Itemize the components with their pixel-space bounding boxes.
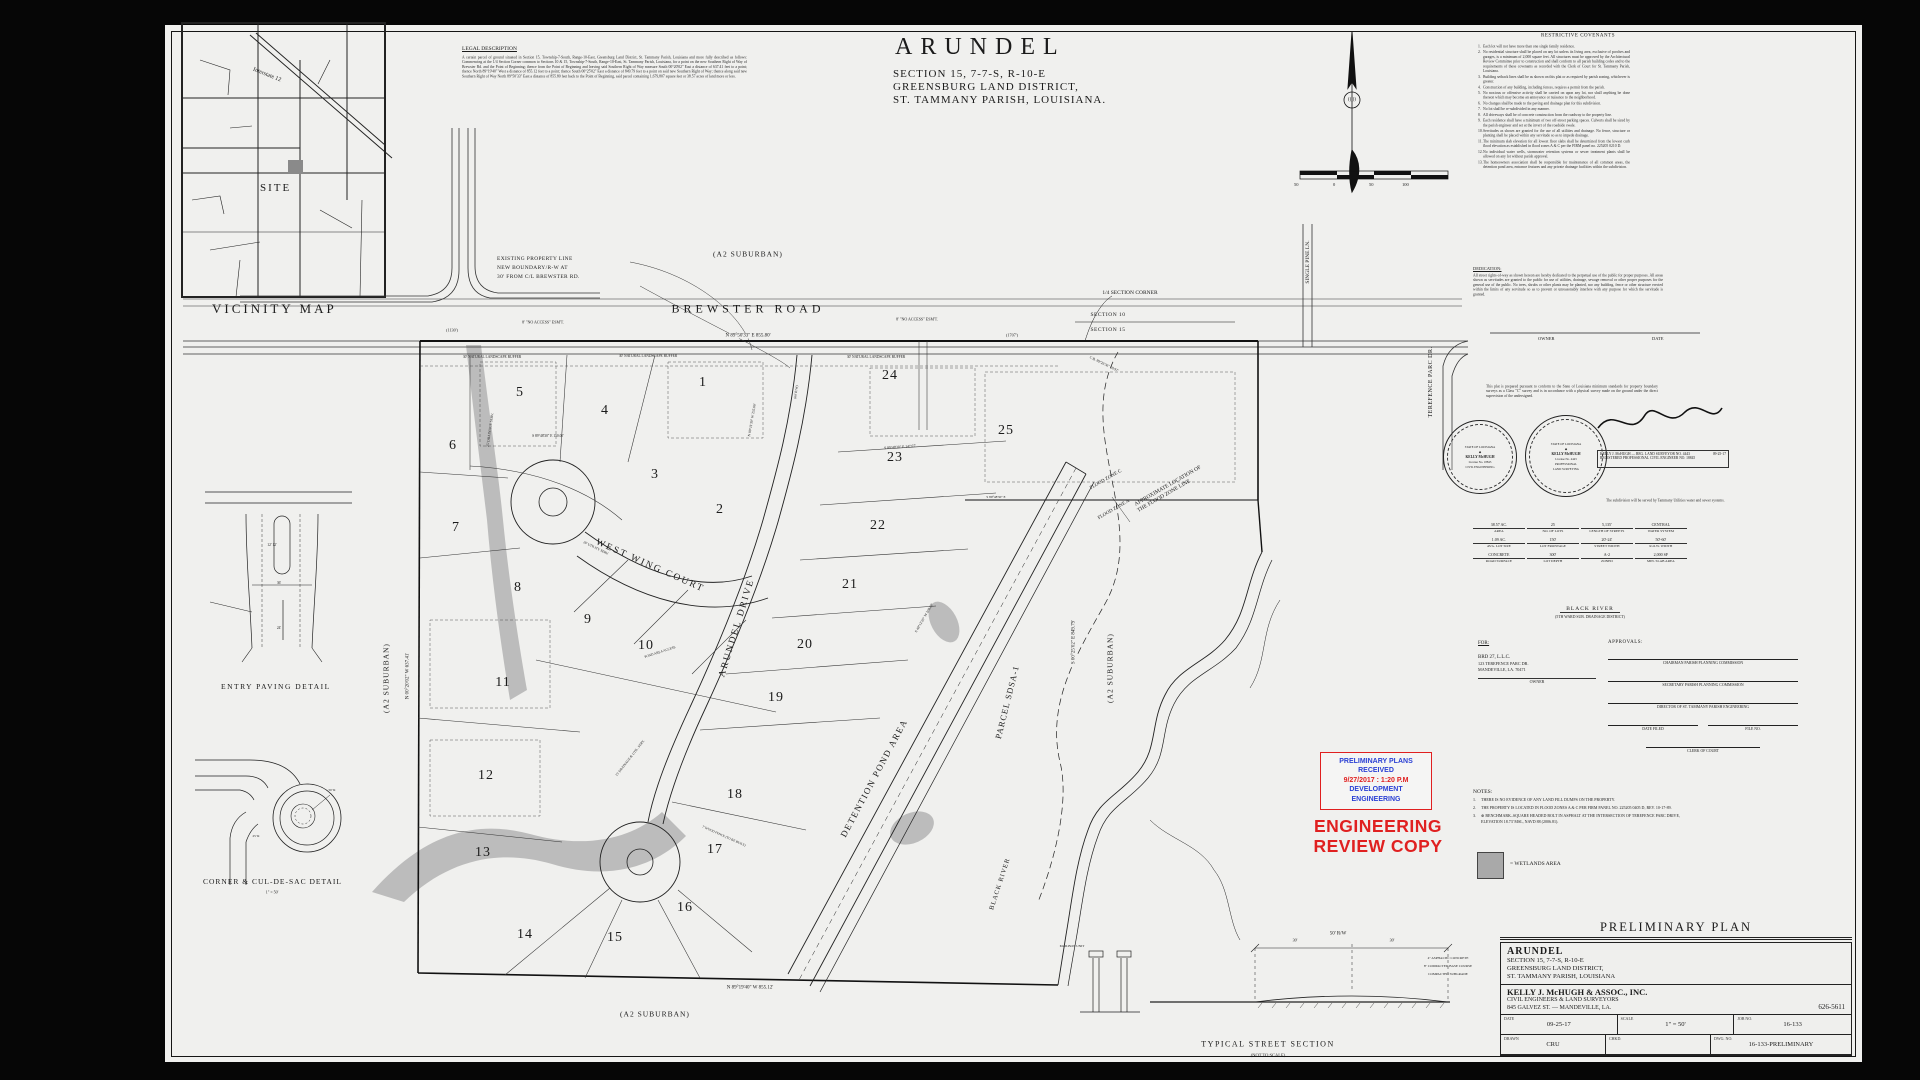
micro-annotation: S 89°48'30" E 150.00' <box>532 434 564 438</box>
signature-box: KELLY J. McHUGH — REG. LAND SURVEYOR NO.… <box>1597 450 1729 468</box>
section10-label: SECTION 10 <box>1090 312 1125 318</box>
setback-lines <box>420 362 1235 816</box>
statistic-cell: A-2ZONED <box>1581 552 1633 563</box>
culdesac-caption: CORNER & CUL-DE-SAC DETAIL <box>203 877 342 886</box>
legal-heading: LEGAL DESCRIPTION <box>462 46 517 52</box>
note-item: 2.THE PROPERTY IS LOCATED IN FLOOD ZONES… <box>1473 805 1683 810</box>
lot-number: 1 <box>699 375 707 391</box>
titleblock-field-job-no-: JOB NO.16-133 <box>1734 1015 1851 1035</box>
boundary-lines <box>418 296 1262 985</box>
titleblock-field-date: DATE09-25-17 <box>1501 1015 1618 1035</box>
utility-service-note: The subdivision will be served by Tamman… <box>1606 498 1726 518</box>
statistic-cell: 25NO. OF LOTS <box>1527 522 1579 533</box>
site-label: SITE <box>260 182 291 194</box>
for-block: FOR: BRD 27, L.L.C. 123 TEREFENCE PARC D… <box>1478 640 1596 685</box>
arundel-drive-lines <box>600 355 812 902</box>
approval-signature-line: SECRETARY PARISH PLANNING COMMISSION <box>1608 671 1798 687</box>
covenant-item: 1.Each lot will not have more than one s… <box>1478 44 1630 49</box>
titleblock-field-dwg-no-: DWG. NO.16-133-PRELIMINARY <box>1711 1035 1851 1055</box>
lot-number: 20 <box>797 637 813 653</box>
micro-annotation: 8' "NO ACCESS" ESM'T. <box>522 320 564 325</box>
plat-sheet-page: ARUNDEL SECTION 15, 7-7-S, R-10-E GREENS… <box>0 0 1920 1080</box>
section15-label: SECTION 15 <box>1090 327 1125 333</box>
road-lines <box>183 128 1468 470</box>
wetlands-areas <box>372 345 966 902</box>
statistic-cell: 2,000 SFMIN. SLAB AREA <box>1635 552 1687 563</box>
statistic-cell: CONCRETEROAD SURFACE <box>1473 552 1525 563</box>
micro-annotation: (1707') <box>1006 333 1018 338</box>
wetlands-legend-swatch <box>1477 852 1504 879</box>
covenants-body: 1.Each lot will not have more than one s… <box>1478 44 1630 262</box>
bearing-right: S 00°25'02" E 849.79' <box>1072 620 1077 664</box>
covenant-item: 3.Building setback lines shall be as sho… <box>1478 74 1630 83</box>
micro-annotation: 36' <box>277 581 281 585</box>
scale-tick: 50 <box>1369 182 1374 187</box>
lot-number: 17 <box>707 842 723 858</box>
lot-number: 23 <box>887 450 903 466</box>
statistic-cell: 300'LOT DEPTH <box>1527 552 1579 563</box>
vicinity-map-lines <box>182 23 392 297</box>
covenant-item: 4.Construction of any building, includin… <box>1478 85 1630 90</box>
lot-number: 9 <box>584 612 592 628</box>
micro-annotation: COMPACTED SUBGRADE <box>1428 972 1468 976</box>
culdesac-detail-lines <box>195 760 341 885</box>
covenant-item: 6.No changes shall be made to the paving… <box>1478 101 1630 106</box>
dedication-body: All street rights-of-way as shown hereon… <box>1473 273 1663 319</box>
micro-annotation: 25' R <box>252 834 259 838</box>
micro-annotation: 30' <box>1390 938 1395 943</box>
micro-annotation: MAILBOX UNIT <box>1060 944 1085 948</box>
site-statistics: 38.57 AC.AREA25NO. OF LOTS5,135'LENGTH O… <box>1473 522 1689 567</box>
lot-number: 18 <box>727 787 743 803</box>
a2-suburban-right: (A2 SUBURBAN) <box>1106 633 1115 703</box>
north-arrow <box>1344 32 1360 192</box>
title-block: PRELIMINARY PLAN ARUNDEL SECTION 15, 7-7… <box>1500 920 1852 1056</box>
received-stamp: PRELIMINARY PLANS RECEIVED 9/27/2017 : 1… <box>1320 752 1432 810</box>
detention-pond-lines <box>788 462 1094 992</box>
micro-annotation: 24' <box>277 626 281 630</box>
covenant-item: 2.No residential structure shall be plac… <box>1478 50 1630 74</box>
micro-annotation: 50' R/W <box>1330 932 1347 937</box>
sheet-subtitle-1: SECTION 15, 7-7-S, R-10-E <box>893 68 1046 80</box>
statistic-cell: 38.57 AC.AREA <box>1473 522 1525 533</box>
lot-number: 7 <box>452 520 460 536</box>
street-section-caption: TYPICAL STREET SECTION <box>1201 1040 1334 1049</box>
covenant-item: 12.No individual water wells, stormwater… <box>1478 149 1630 158</box>
lot-number: 6 <box>449 438 457 454</box>
statistic-cell: CENTRALWATER SYSTEM <box>1635 522 1687 533</box>
scale-tick: 0 <box>1333 182 1335 187</box>
a2-suburban-bottom: (A2 SUBURBAN) <box>620 1010 690 1019</box>
covenant-item: 10.Servitudes as shown are granted for t… <box>1478 129 1630 138</box>
scale-bar <box>1300 171 1448 179</box>
entry-paving-caption: ENTRY PAVING DETAIL <box>221 682 331 691</box>
lot-number: 2 <box>716 502 724 518</box>
lot-number: 4 <box>601 403 609 419</box>
lot-number: 11 <box>495 675 510 691</box>
scale-tick: 50 <box>1294 182 1299 187</box>
black-river-lines <box>1058 552 1280 986</box>
vicinity-caption: VICINITY MAP <box>212 301 337 317</box>
bearing-bottom: N 89°19'40" W 855.12' <box>727 986 774 991</box>
statistic-cell: 1.09 AC.AVG. LOT SIZE <box>1473 537 1525 548</box>
micro-annotation: 30' <box>1293 938 1298 943</box>
titleblock-project: ARUNDEL <box>1507 946 1845 957</box>
approval-signature-line: DIRECTOR OF ST. TAMMANY PARISH ENGINEERI… <box>1608 693 1798 709</box>
terefence-label: TEREFENCE PARC DR. <box>1428 347 1434 418</box>
approvals-block: APPROVALS: CHAIRMAN PARISH PLANNING COMM… <box>1608 640 1798 759</box>
street-section-lines <box>1080 944 1452 1012</box>
land-surveyor-seal: STATE OF LOUISIANA ◆ KELLY McHUGH Licens… <box>1525 415 1607 497</box>
micro-annotation: 50' R <box>328 788 335 792</box>
covenant-item: 9.Each residence shall have a minimum of… <box>1478 118 1630 127</box>
micro-annotation: 30' NATURAL LANDSCAPE BUFFER <box>463 355 521 359</box>
covenant-item: 5.No noxious or offensive activity shall… <box>1478 90 1630 99</box>
lot-number: 14 <box>517 927 533 943</box>
legal-body: A certain parcel of ground situated in S… <box>462 55 747 155</box>
brewster-road-label: BREWSTER ROAD <box>671 302 824 317</box>
existing-property-note-1: EXISTING PROPERTY LINE <box>497 256 573 262</box>
lot-number: 19 <box>768 690 784 706</box>
a2-suburban-top: (A2 SUBURBAN) <box>713 250 783 259</box>
statistic-cell: 150'LOT FRONTAGE <box>1527 537 1579 548</box>
notes-block: NOTES: 1.THERE IS NO EVIDENCE OF ANY LAN… <box>1473 789 1683 827</box>
lot-number: 22 <box>870 518 886 534</box>
existing-property-note-2: NEW BOUNDARY/R-W AT <box>497 265 568 271</box>
covenant-item: 11.The minimum slab elevation for all lo… <box>1478 139 1630 148</box>
micro-annotation: 30' NATURAL LANDSCAPE BUFFER <box>847 355 905 359</box>
lot-number: 25 <box>998 423 1014 439</box>
quarter-corner-label: 1/4 SECTION CORNER <box>1102 290 1157 296</box>
entry-paving-lines <box>205 492 352 662</box>
black-river-note: BLACK RIVER (5TH WARD SUB. DRAINAGE DIST… <box>1520 597 1660 619</box>
lot-number: 21 <box>842 577 858 593</box>
micro-annotation: 12' 12' <box>267 543 276 547</box>
lot-number: 15 <box>607 930 623 946</box>
firm-name: KELLY J. McHUGH & ASSOC., INC. <box>1507 987 1845 997</box>
micro-annotation: (1130') <box>446 328 458 333</box>
lot-number: 24 <box>882 368 898 384</box>
micro-annotation: 8" COMPACTED BASE COURSE <box>1424 964 1472 968</box>
lot-number: 5 <box>516 385 524 401</box>
north-arrow-emblem: (( )) <box>1348 98 1356 103</box>
note-item: 3.⊕ BENCHMARK–SQUARE HEADED BOLT IN ASPH… <box>1473 813 1683 823</box>
statistic-cell: 50'-60'R.O.W. WIDTH <box>1635 537 1687 548</box>
note-item: 1.THERE IS NO EVIDENCE OF ANY LAND FILL … <box>1473 797 1683 802</box>
covenants-heading: RESTRICTIVE COVENANTS <box>1541 34 1615 39</box>
scale-tick: 100 <box>1402 182 1409 187</box>
statistic-cell: 5,135'LENGTH OF STREETS <box>1581 522 1633 533</box>
dedication-heading: DEDICATION: <box>1473 266 1502 271</box>
micro-annotation: 4" ASPHALTIC CONCRETE <box>1428 956 1469 960</box>
existing-property-note-3: 30' FROM C/L BREWSTER RD. <box>497 274 580 280</box>
micro-annotation: 30' NATURAL LANDSCAPE BUFFER <box>619 354 677 358</box>
date-label: DATE <box>1652 336 1664 341</box>
statistic-cell: 20'-24'STREET WIDTH <box>1581 537 1633 548</box>
titleblock-field-drawn: DRAWNCRU <box>1501 1035 1606 1055</box>
covenant-item: 7.No lot shall be re-subdivided in any m… <box>1478 107 1630 112</box>
lot-number: 16 <box>677 900 693 916</box>
bearing-left: N 00°20'02" W 637.41' <box>406 653 411 700</box>
civil-engineer-seal: STATE OF LOUISIANA ◆ KELLY McHUGH Licens… <box>1443 420 1517 494</box>
covenant-item: 8.All driveways shall be of concrete con… <box>1478 112 1630 117</box>
firm-phone: 626-5611 <box>1818 1003 1845 1011</box>
wetlands-legend-label: = WETLANDS AREA <box>1510 861 1561 867</box>
sheet-subtitle-2: GREENSBURG LAND DISTRICT, <box>893 81 1079 93</box>
covenant-item: 13.The homeowners association shall be r… <box>1478 160 1630 169</box>
lot-number: 12 <box>478 768 494 784</box>
bearing-top: N 89°50'33" E 855.80' <box>722 334 773 339</box>
culdesac-scale: 1" = 50' <box>266 890 279 895</box>
flood-zone-line <box>1038 352 1120 902</box>
street-section-scale: (NOT TO SCALE) <box>1251 1053 1286 1058</box>
owner-label: OWNER <box>1538 336 1555 341</box>
west-wing-court-lines <box>511 460 768 607</box>
micro-annotation: S 89°48'30" E <box>986 495 1005 499</box>
a2-suburban-left: (A2 SUBURBAN) <box>382 643 391 713</box>
lot-number: 8 <box>514 580 522 596</box>
engineering-review-copy-stamp: ENGINEERING REVIEW COPY <box>1308 816 1448 856</box>
sheet-subtitle-3: ST. TAMMANY PARISH, LOUISIANA. <box>893 94 1106 106</box>
lot-number: 13 <box>475 845 491 861</box>
titleblock-field-scale: SCALE1" = 50' <box>1618 1015 1735 1035</box>
titleblock-header: PRELIMINARY PLAN <box>1500 920 1852 938</box>
micro-annotation: 8' "NO ACCESS" ESM'T. <box>896 317 938 322</box>
lot-number: 3 <box>651 467 659 483</box>
single-pine-label: SINGLE PINE LN. <box>1305 240 1311 283</box>
titleblock-field-chkd-: CHKD. <box>1606 1035 1711 1055</box>
sheet-title: ARUNDEL <box>895 34 1066 61</box>
approval-signature-line: CHAIRMAN PARISH PLANNING COMMISSION <box>1608 649 1798 665</box>
certification-note: This plat is prepared pursuant to confor… <box>1486 384 1658 414</box>
